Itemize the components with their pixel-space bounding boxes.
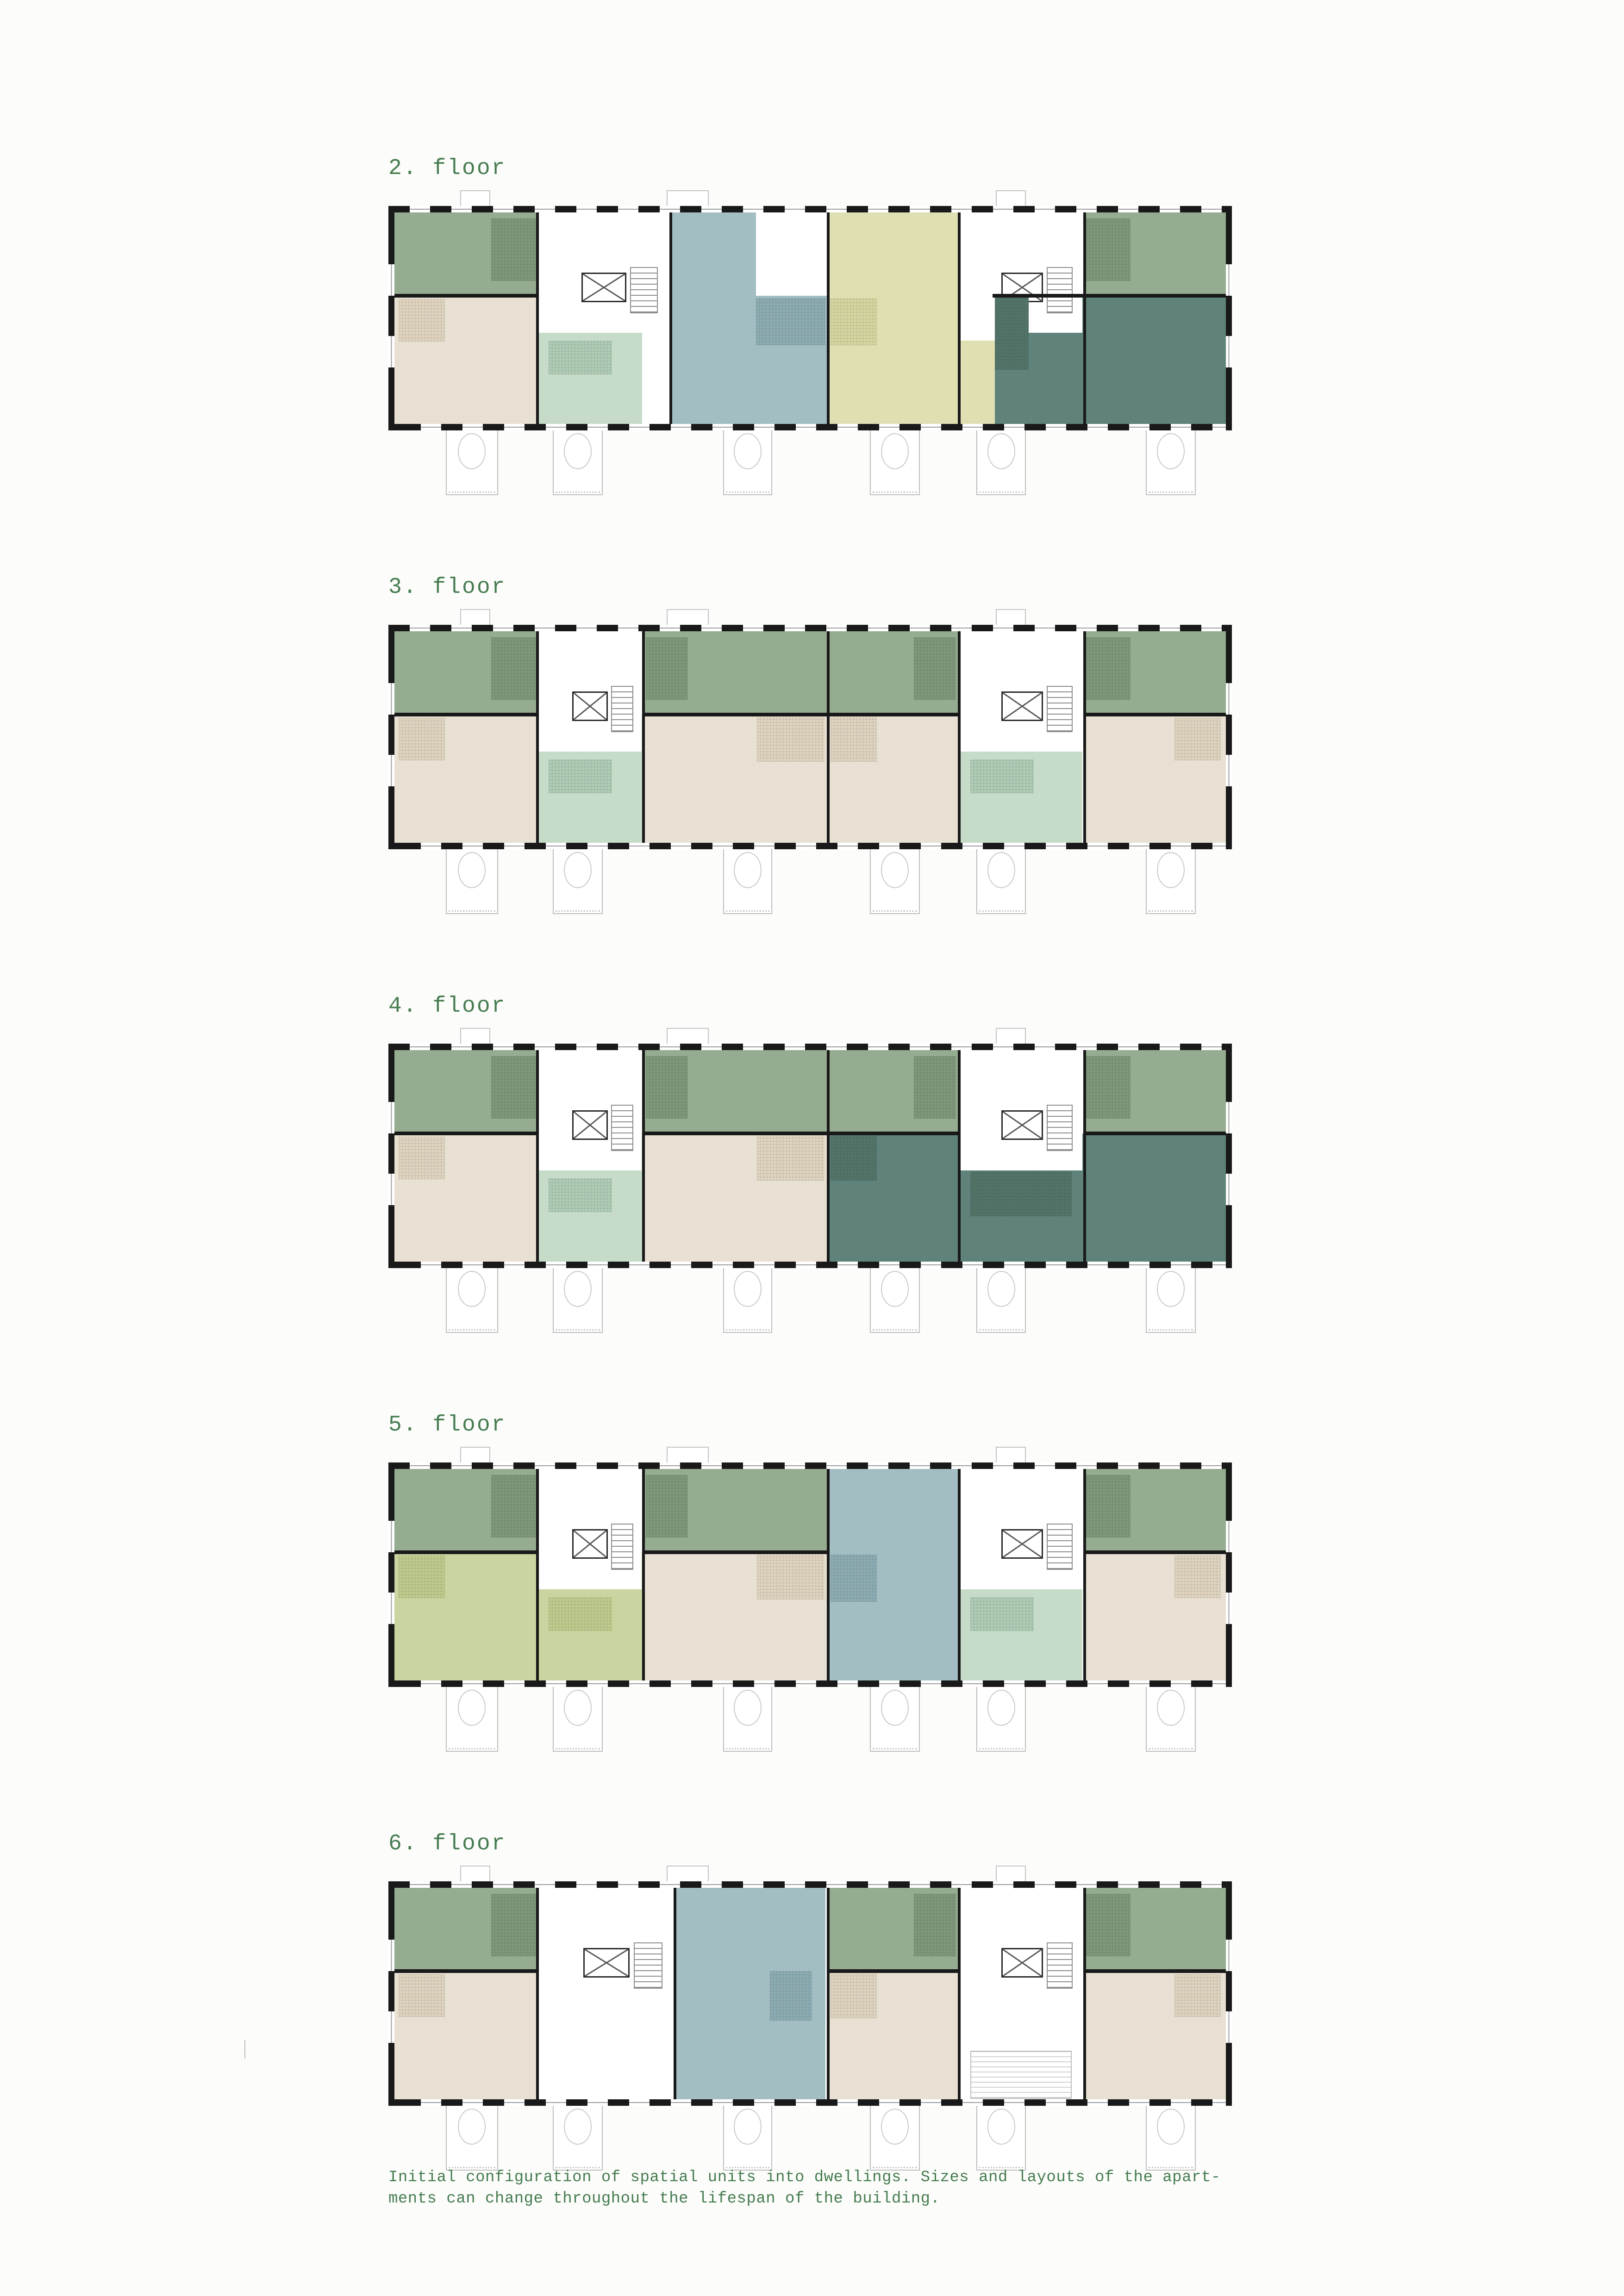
interior-wall-vertical-1 [536,1468,539,1681]
window-icon [388,1102,394,1133]
interior-wall-vertical-1 [536,1049,539,1263]
balcony-3 [723,430,772,495]
bath-beige-bottom-right [1174,1974,1221,2017]
exterior-wall-top [388,625,1232,631]
exterior-wall-bottom [388,843,1232,849]
balcony-table-icon [1157,852,1185,888]
balcony-1 [446,1268,498,1333]
balcony-table-icon [987,1690,1015,1726]
balcony-5 [976,849,1026,914]
interior-wall-horizontal-3 [1083,713,1226,716]
bath-beige-bottom-right [1174,718,1221,760]
roof-protrusion-1 [460,1866,491,1881]
window-icon [1226,755,1232,786]
floor-label-5: 5. floor [388,1411,1232,1439]
stair-flight-icon [611,1105,633,1151]
interior-wall-horizontal-3 [1083,1550,1226,1554]
bath-mint-right [970,1597,1034,1631]
interior-wall-horizontal-2 [993,294,1226,298]
bath-blue [831,1555,877,1602]
balcony-table-icon [1157,1271,1185,1307]
exterior-wall-bottom [388,2099,1232,2106]
elevator-shaft-icon [572,1110,608,1140]
bath-sage-top-right [1086,218,1131,281]
interior-wall-vertical-5 [1083,212,1086,425]
bath-mint-2 [970,759,1034,793]
balcony-table-icon [1157,2109,1185,2145]
interior-wall-horizontal-1 [394,294,536,298]
interior-wall-vertical-3 [827,212,830,425]
window-icon [1226,1174,1232,1205]
window-icon [388,1593,394,1624]
bath-beige-bottom-right [1174,1556,1221,1598]
balcony-table-icon [881,433,909,469]
bath-sage-top-left [491,1894,536,1957]
stair-flight-icon [1047,1105,1073,1151]
balcony-table-icon [987,1271,1015,1307]
interior-wall-horizontal-2 [827,1969,957,1973]
window-icon [388,683,394,715]
balcony-2 [553,1687,602,1752]
bath-sage-top-mid2 [914,637,956,700]
exterior-wall-bottom [388,424,1232,430]
stair-flight-icon [1047,1942,1073,1989]
exterior-wall-right [1226,1044,1232,1268]
elevator-shaft-icon [1001,1110,1043,1140]
balcony-table-icon [734,1690,762,1726]
stair-core-2 [959,1050,1082,1170]
window-icon [1226,683,1232,715]
roof-protrusion-3 [996,1866,1026,1881]
interior-wall-vertical-4 [958,212,961,425]
exterior-wall-top [388,206,1232,212]
bath-sage-top-right [1086,1475,1131,1538]
caption-line-2: ments can change throughout the lifespan… [388,2190,940,2208]
floor-section-2: 2. floor [388,154,1232,430]
bath-sage-top-mid [914,1894,956,1957]
unit-blue-main [670,212,756,424]
elevator-shaft-icon [572,1529,608,1559]
bath-teal [995,296,1029,370]
stair-flight-icon [634,1942,662,1989]
bath-sage-top-left [491,1475,536,1538]
balcony-2 [553,430,602,495]
floor-section-3: 3. floor [388,573,1232,849]
roof-protrusion-2 [667,190,709,206]
exterior-wall-left [388,1881,394,2106]
balcony-1 [446,2106,498,2171]
balcony-4 [870,1687,919,1752]
elevator-shaft-icon [1001,1948,1043,1978]
exterior-wall-top [388,1044,1232,1050]
roof-protrusion-2 [667,1447,709,1462]
bath-mint [549,341,612,374]
floor-section-5: 5. floor [388,1411,1232,1687]
elevator-shaft-icon [1001,691,1043,721]
balcony-table-icon [564,852,592,888]
interior-wall-vertical-2 [669,212,672,425]
balcony-1 [446,1687,498,1752]
stair-core-1 [537,212,668,333]
bath-beige-bottom-mid1 [757,1136,824,1181]
interior-wall-vertical-5 [1083,1468,1086,1681]
balcony-table-icon [564,1271,592,1307]
bath-lime-bottom-left [399,1556,445,1598]
elevator-shaft-icon [572,691,608,721]
window-icon [1226,2011,1232,2043]
interior-wall-vertical-3 [827,630,830,844]
floor-plan-4 [388,1044,1232,1268]
bath-sage-top-right [1086,1056,1131,1119]
interior-wall-vertical-4 [958,1468,961,1681]
interior-wall-vertical-2 [642,1049,645,1263]
balcony-5 [976,1268,1026,1333]
stair-core-2 [959,1469,1082,1589]
balcony-1 [446,849,498,914]
elevator-shaft-icon [583,1948,630,1978]
margin-tick-mark [244,2040,245,2059]
interior-wall-vertical-3 [827,1049,830,1263]
interior-wall-horizontal-3 [1083,1969,1226,1973]
roof-protrusion-3 [996,1028,1026,1044]
bath-sage-top-right [1086,1894,1131,1957]
interior-wall-vertical-1 [536,630,539,844]
interior-wall-vertical-5 [1083,630,1086,844]
bath-beige-bottom-mid [831,1973,877,2018]
interior-wall-vertical-4 [958,1049,961,1263]
roof-protrusion-3 [996,609,1026,625]
balcony-table-icon [881,1271,909,1307]
window-icon [388,2011,394,2043]
floor-plan-5 [388,1462,1232,1687]
balcony-5 [976,430,1026,495]
balcony-table-icon [987,2109,1015,2145]
window-icon [388,264,394,296]
interior-wall-vertical-2 [674,1887,676,2100]
floor-section-6: 6. floor [388,1829,1232,2106]
balcony-2 [553,1268,602,1333]
exterior-wall-top [388,1462,1232,1469]
stair-flight-icon [611,1524,633,1570]
roof-protrusion-2 [667,1028,709,1044]
unit-khaki-annex [959,341,995,424]
bath-teal-1 [831,1136,877,1181]
balcony-table-icon [734,433,762,469]
floor-label-4: 4. floor [388,992,1232,1020]
interior-wall-vertical-4 [958,630,961,844]
exterior-wall-right [1226,1462,1232,1687]
bath-sage-top-mid2 [914,1056,956,1119]
interior-wall-vertical-1 [536,1887,539,2100]
balcony-6 [1146,1268,1195,1333]
bath-mint-1 [549,1178,612,1212]
window-icon [388,336,394,367]
interior-wall-vertical-5 [1083,1049,1086,1263]
window-icon [388,1521,394,1552]
bath-sage-top-left [491,1056,536,1119]
exterior-wall-top [388,1881,1232,1888]
balcony-4 [870,1268,919,1333]
roof-protrusion-1 [460,609,491,625]
window-icon [1226,1593,1232,1624]
balcony-3 [723,2106,772,2171]
exterior-wall-bottom [388,1262,1232,1268]
balcony-table-icon [881,852,909,888]
sheet-caption: Initial configuration of spatial units i… [388,2167,1221,2209]
roof-protrusion-3 [996,1447,1026,1462]
balcony-table-icon [458,1690,486,1726]
interior-wall-vertical-2 [642,1468,645,1681]
stair-flight-icon [1047,1524,1073,1570]
stair-flight-icon [1047,686,1073,732]
floor-plan-6 [388,1881,1232,2106]
window-icon [1226,336,1232,367]
window-icon [1226,1521,1232,1552]
interior-wall-vertical-1 [536,212,539,425]
bath-beige-bottom-left [399,718,445,760]
bath-beige-bottom-mid [757,1555,824,1599]
roof-protrusion-1 [460,1447,491,1462]
bath-sage-top-left [491,637,536,700]
bath-beige-bottom-mid1 [757,717,824,762]
exterior-wall-left [388,1462,394,1687]
exterior-wall-bottom [388,1680,1232,1687]
bath-sage-top-right [1086,637,1131,700]
elevator-shaft-icon [581,273,626,302]
balcony-table-icon [564,1690,592,1726]
bath-beige-bottom-left [399,1137,445,1179]
roof-protrusion-1 [460,190,491,206]
balcony-table-icon [734,852,762,888]
caption-line-1: Initial configuration of spatial units i… [388,2169,1221,2186]
balcony-table-icon [458,852,486,888]
window-icon [388,1940,394,1971]
balcony-5 [976,2106,1026,2171]
balcony-1 [446,430,498,495]
balcony-2 [553,2106,602,2171]
bath-sage-top-mid1 [646,637,688,700]
interior-wall-vertical-3 [827,1468,830,1681]
bath-teal-2 [970,1171,1072,1216]
interior-wall-horizontal-3 [1083,1132,1226,1135]
stair-core-1 [537,1888,674,2093]
floor-plan-2 [388,206,1232,430]
stair-flight-icon [1047,267,1073,313]
balcony-table-icon [881,1690,909,1726]
interior-wall-vertical-3 [827,1887,830,2100]
stair-flight-icon [630,267,658,313]
window-icon [1226,1102,1232,1133]
architectural-sheet: { "sheet": { "title": "Floor plan config… [0,0,1624,2296]
balcony-5 [976,1687,1026,1752]
roof-protrusion-2 [667,1866,709,1881]
interior-wall-horizontal-1 [394,1550,536,1554]
interior-wall-horizontal-1 [394,1132,536,1135]
stair-core-1 [537,1050,642,1170]
balcony-table-icon [564,2109,592,2145]
balcony-table-icon [458,1271,486,1307]
exterior-wall-right [1226,1881,1232,2106]
exterior-wall-left [388,206,394,430]
interior-wall-horizontal-1 [394,1969,536,1973]
bath-sage-top-mid1 [646,1056,688,1119]
balcony-3 [723,849,772,914]
balcony-4 [870,430,919,495]
balcony-table-icon [734,1271,762,1307]
bath-sage-top-left [491,218,536,281]
balcony-table-icon [1157,433,1185,469]
roof-protrusion-3 [996,190,1026,206]
interior-wall-horizontal-1 [394,713,536,716]
bath-khaki [831,298,877,345]
floor-label-3: 3. floor [388,573,1232,602]
balcony-6 [1146,1687,1195,1752]
roof-protrusion-2 [667,609,709,625]
balcony-4 [870,2106,919,2171]
balcony-table-icon [987,433,1015,469]
balcony-table-icon [1157,1690,1185,1726]
balcony-6 [1146,2106,1195,2171]
bath-lime-2 [549,1597,612,1631]
balcony-table-icon [734,2109,762,2145]
exterior-wall-left [388,1044,394,1268]
window-icon [388,755,394,786]
bath-mint-1 [549,759,612,793]
window-icon [1226,264,1232,296]
balcony-6 [1146,849,1195,914]
exterior-wall-right [1226,625,1232,849]
interior-wall-vertical-2 [642,630,645,844]
window-icon [388,1174,394,1205]
balcony-2 [553,849,602,914]
floor-plan-3 [388,625,1232,849]
bath-sage-top-mid1 [646,1475,688,1538]
bath-beige-bottom-mid2 [831,717,877,762]
balcony-table-icon [987,852,1015,888]
balcony-table-icon [564,433,592,469]
bath-beige-bottom-left [399,1974,445,2017]
balcony-6 [1146,430,1195,495]
bath-blue [756,298,825,345]
interior-wall-vertical-5 [1083,1887,1086,2100]
balcony-table-icon [881,2109,909,2145]
balcony-table-icon [458,433,486,469]
interior-wall-horizontal-2 [642,1550,827,1554]
balcony-3 [723,1687,772,1752]
window-icon [1226,1940,1232,1971]
balcony-4 [870,849,919,914]
balcony-3 [723,1268,772,1333]
stair-core-2 [959,1888,1082,2043]
interior-wall-horizontal-2 [642,1132,957,1135]
roof-terrace [970,2051,1072,2099]
floor-label-6: 6. floor [388,1829,1232,1858]
elevator-shaft-icon [1001,1529,1043,1559]
interior-wall-vertical-4 [958,1887,961,2100]
floor-label-2: 2. floor [388,154,1232,183]
balcony-table-icon [458,2109,486,2145]
bath-beige-bottom-left [399,299,445,342]
exterior-wall-right [1226,206,1232,430]
stair-core-1 [537,1469,642,1589]
roof-protrusion-1 [460,1028,491,1044]
interior-wall-horizontal-2 [642,713,957,716]
stair-core-2 [959,631,1082,752]
stair-flight-icon [611,686,633,732]
exterior-wall-left [388,625,394,849]
stair-core-1 [537,631,642,752]
floor-section-4: 4. floor [388,992,1232,1268]
bath-blue [770,1971,812,2021]
